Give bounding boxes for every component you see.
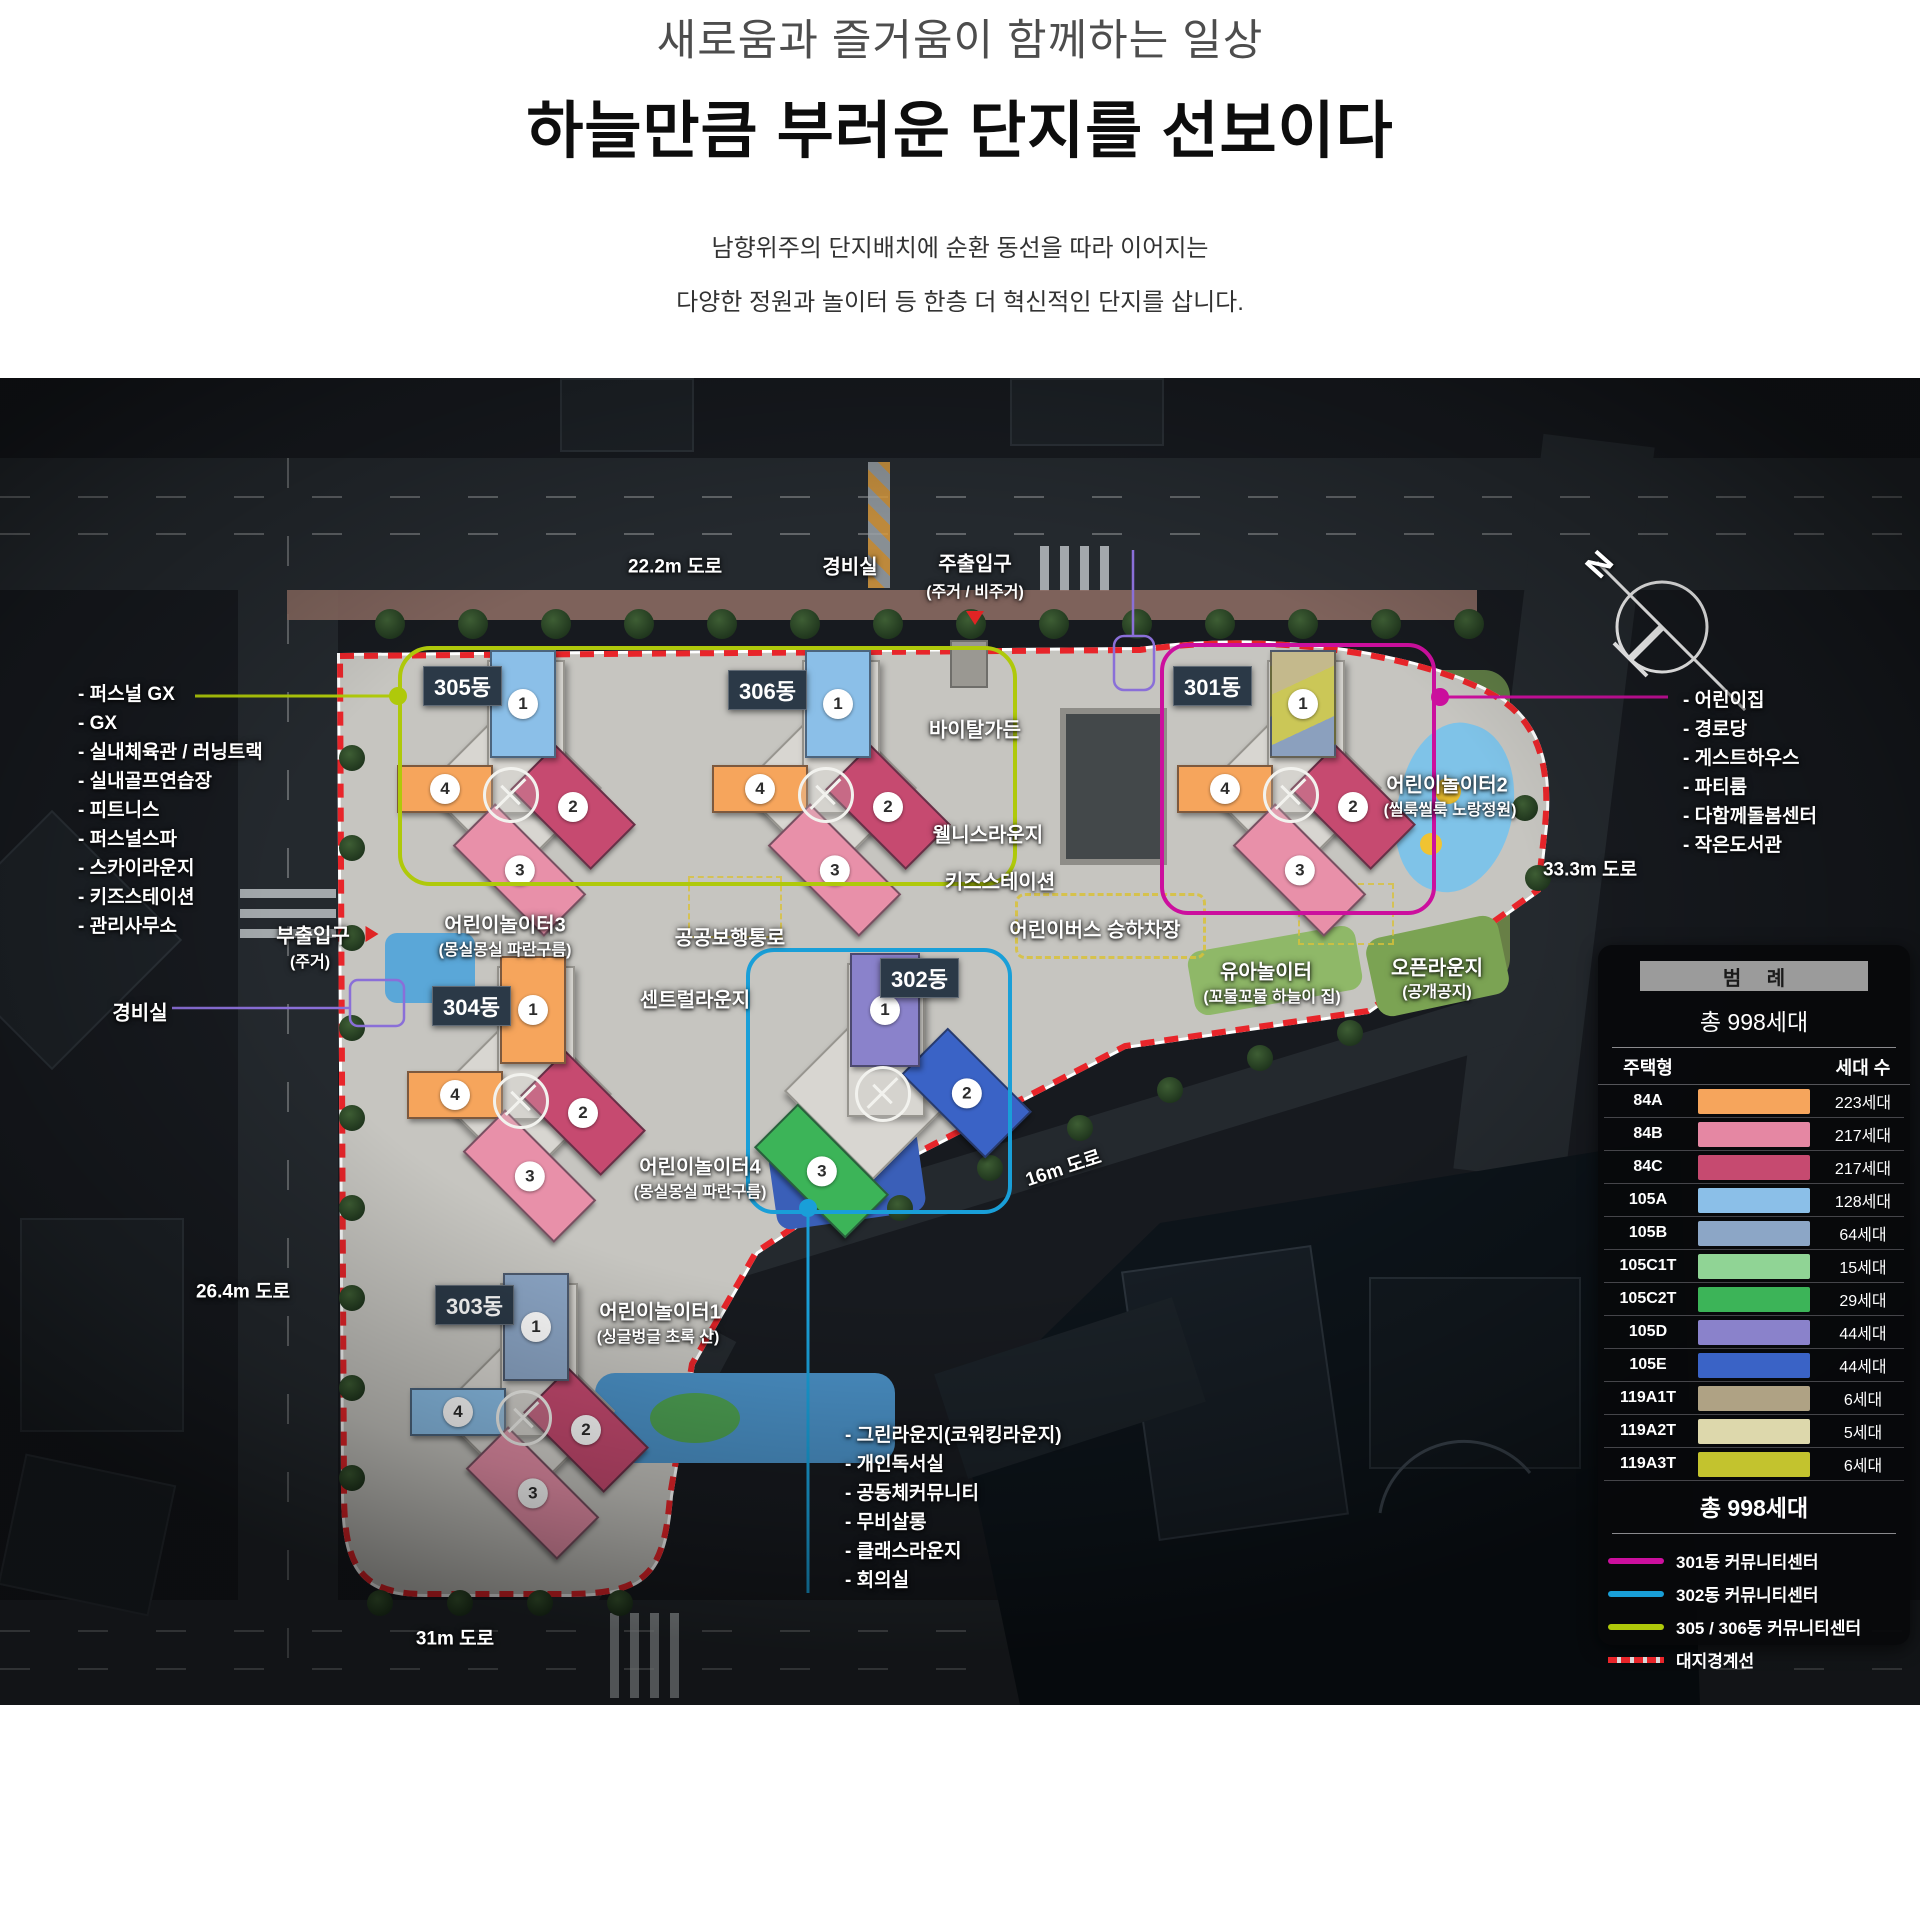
road-label-left: 26.4m 도로 (196, 1277, 290, 1304)
unit-type: 105D (1604, 1323, 1692, 1341)
unit-color-swatch (1698, 1221, 1810, 1246)
wing-number-badge: 2 (1338, 792, 1368, 822)
playground1-label: 어린이놀이터1 (599, 1296, 721, 1325)
legend-total-top: 총 998세대 (1598, 1003, 1910, 1037)
description-line-1: 남향위주의 단지배치에 순환 동선을 따라 이어지는 (0, 222, 1920, 276)
guard-post-left-label: 경비실 (112, 997, 167, 1026)
wing-number-badge: 1 (521, 1312, 551, 1342)
wing-number-badge: 2 (952, 1078, 982, 1108)
open-lounge-label: 오픈라운지 (1391, 952, 1483, 981)
legend-community-list: 301동 커뮤니티센터 302동 커뮤니티센터 305 / 306동 커뮤니티센… (1598, 1544, 1910, 1643)
central-lounge-label: 센트럴라운지 (640, 984, 750, 1013)
open-lounge-sublabel: (공개공지) (1402, 978, 1472, 1002)
legend-row: 84B 217세대 (1604, 1118, 1904, 1151)
helipad-icon (493, 1073, 549, 1129)
side-entrance-label: 부출입구 (276, 920, 350, 949)
community-label: 305 / 306동 커뮤니티센터 (1676, 1614, 1861, 1639)
legend-row: 119A1T 6세대 (1604, 1382, 1904, 1415)
building-304-wing-4: 4 (407, 1071, 503, 1119)
community-label: 302동 커뮤니티센터 (1676, 1581, 1819, 1606)
side-entrance-arrow-icon (366, 926, 379, 942)
facility-item: - 스카이라운지 (78, 854, 263, 883)
facility-item: - 퍼스널스파 (78, 825, 263, 854)
legend-divider (1612, 1047, 1896, 1048)
main-entrance-arrow-icon (966, 611, 984, 625)
facility-item: - 공동체커뮤니티 (845, 1479, 1062, 1508)
facility-item: - 무비살롱 (845, 1508, 1062, 1537)
legend-row: 105A 128세대 (1604, 1184, 1904, 1217)
facility-item: - 퍼스널 GX (78, 680, 263, 709)
legend-row: 105C1T 15세대 (1604, 1250, 1904, 1283)
community-label: 301동 커뮤니티센터 (1676, 1548, 1819, 1573)
legend-row: 84C 217세대 (1604, 1151, 1904, 1184)
left-facility-list: - 퍼스널 GX- GX- 실내체육관 / 러닝트랙- 실내골프연습장- 피트니… (78, 680, 263, 941)
helipad-icon (798, 767, 854, 823)
wing-number-badge: 1 (823, 689, 853, 719)
facility-item: - 키즈스테이션 (78, 883, 263, 912)
boundary-label: 대지경계선 (1676, 1647, 1754, 1672)
building-label-302: 302동 (880, 958, 959, 998)
public-walkway-label: 공공보행통로 (675, 922, 785, 951)
unit-type: 119A3T (1604, 1455, 1692, 1473)
legend-row: 105D 44세대 (1604, 1316, 1904, 1349)
boundary-dash-swatch (1608, 1657, 1664, 1663)
building-label-303: 303동 (435, 1285, 514, 1325)
guard-post-top-label: 경비실 (822, 551, 877, 580)
building-301-wing-1: 1 (1270, 650, 1336, 758)
wellness-lounge-label: 웰니스라운지 (933, 819, 1043, 848)
facility-item: - 피트니스 (78, 796, 263, 825)
helipad-icon (483, 767, 539, 823)
building-301-wing-4: 4 (1177, 765, 1273, 813)
unit-color-swatch (1698, 1452, 1810, 1477)
unit-count: 6세대 (1816, 1386, 1910, 1410)
wing-number-badge: 3 (807, 1156, 837, 1186)
facility-item: - 파티룸 (1683, 773, 1817, 802)
playground3-label: 어린이놀이터3 (444, 909, 566, 938)
building-label-306: 306동 (728, 670, 807, 710)
wing-number-badge: 1 (518, 995, 548, 1025)
unit-count: 223세대 (1816, 1089, 1910, 1113)
unit-color-swatch (1698, 1155, 1810, 1180)
legend-column-headers: 주택형 세대 수 (1604, 1052, 1904, 1082)
infant-play-label: 유아놀이터 (1220, 956, 1312, 985)
legend-panel: 범 례 총 998세대 주택형 세대 수 84A 223세대 84B 217세대 (1598, 945, 1910, 1645)
wing-number-badge: 4 (745, 774, 775, 804)
wing-number-badge: 3 (515, 1161, 545, 1191)
facility-item: - 개인독서실 (845, 1450, 1062, 1479)
wing-number-badge: 3 (1285, 855, 1315, 885)
building-label-301: 301동 (1173, 666, 1252, 706)
playground4-label: 어린이놀이터4 (639, 1151, 761, 1180)
facility-item: - 실내골프연습장 (78, 767, 263, 796)
legend-row: 105B 64세대 (1604, 1217, 1904, 1250)
building-305-wing-4: 4 (397, 765, 493, 813)
helipad-icon (496, 1390, 552, 1446)
unit-type: 119A2T (1604, 1422, 1692, 1440)
right-facility-list: - 어린이집- 경로당- 게스트하우스- 파티룸- 다함께돌봄센터- 작은도서관 (1683, 686, 1817, 860)
community-legend-item: 301동 커뮤니티센터 (1598, 1544, 1910, 1577)
description-line-2: 다양한 정원과 놀이터 등 한층 더 혁신적인 단지를 삽니다. (0, 276, 1920, 330)
unit-color-swatch (1698, 1188, 1810, 1213)
wing-number-badge: 4 (440, 1080, 470, 1110)
facility-item: - 그린라운지(코워킹라운지) (845, 1421, 1062, 1450)
legend-row: 105E 44세대 (1604, 1349, 1904, 1382)
legend-row: 105C2T 29세대 (1604, 1283, 1904, 1316)
bottom-facility-list: - 그린라운지(코워킹라운지)- 개인독서실- 공동체커뮤니티- 무비살롱- 클… (845, 1421, 1062, 1595)
unit-type: 105A (1604, 1191, 1692, 1209)
unit-count: 44세대 (1816, 1353, 1910, 1377)
main-entrance-label: 주출입구 (938, 548, 1012, 577)
unit-color-swatch (1698, 1386, 1810, 1411)
wing-number-badge: 4 (443, 1397, 473, 1427)
legend-row: 84A 223세대 (1604, 1085, 1904, 1118)
legend-total-bottom: 총 998세대 (1598, 1489, 1910, 1523)
boundary-legend-item: 대지경계선 (1598, 1643, 1910, 1676)
building-306: 4321306동 (710, 650, 970, 920)
facility-item: - GX (78, 709, 263, 738)
unit-count: 29세대 (1816, 1287, 1910, 1311)
wing-number-badge: 2 (558, 792, 588, 822)
wing-number-badge: 2 (568, 1098, 598, 1128)
wing-number-badge: 2 (873, 792, 903, 822)
building-305: 4321305동 (395, 650, 655, 920)
kids-station-label: 키즈스테이션 (945, 866, 1055, 895)
side-entrance-sublabel: (주거) (290, 948, 330, 972)
building-303-wing-4: 4 (410, 1388, 506, 1436)
unit-count: 6세대 (1816, 1452, 1910, 1476)
facility-item: - 작은도서관 (1683, 831, 1817, 860)
unit-color-swatch (1698, 1089, 1810, 1114)
building-304: 4321304동 (405, 956, 665, 1226)
unit-count: 128세대 (1816, 1188, 1910, 1212)
wing-number-badge: 3 (518, 1478, 548, 1508)
unit-type: 105C1T (1604, 1257, 1692, 1275)
infant-play-sublabel: (꼬물꼬물 하늘이 집) (1203, 983, 1340, 1007)
facility-item: - 클래스라운지 (845, 1537, 1062, 1566)
community-line-swatch (1608, 1558, 1664, 1564)
unit-color-swatch (1698, 1287, 1810, 1312)
playground2-label: 어린이놀이터2 (1386, 769, 1508, 798)
facility-item: - 다함께돌봄센터 (1683, 802, 1817, 831)
community-legend-item: 302동 커뮤니티센터 (1598, 1577, 1910, 1610)
unit-count: 64세대 (1816, 1221, 1910, 1245)
wing-number-badge: 1 (508, 689, 538, 719)
helipad-icon (855, 1066, 911, 1122)
building-306-wing-4: 4 (712, 765, 808, 813)
unit-color-swatch (1698, 1353, 1810, 1378)
legend-rows: 84A 223세대 84B 217세대 84C 217세대 10 (1598, 1084, 1910, 1481)
unit-type: 105E (1604, 1356, 1692, 1374)
site-plan-map: 4321305동4321306동4321301동4321304동321302동4… (0, 378, 1920, 1705)
wing-number-badge: 3 (820, 855, 850, 885)
building-label-305: 305동 (423, 666, 502, 706)
facility-item: - 어린이집 (1683, 686, 1817, 715)
unit-count: 44세대 (1816, 1320, 1910, 1344)
building-302: 321302동 (755, 953, 1015, 1223)
unit-color-swatch (1698, 1419, 1810, 1444)
facility-item: - 회의실 (845, 1566, 1062, 1595)
road-label-bottom: 31m 도로 (416, 1624, 494, 1651)
wing-number-badge: 2 (571, 1415, 601, 1445)
unit-type: 84B (1604, 1125, 1692, 1143)
playground2-sublabel: (씰룩씰룩 노랑정원) (1384, 796, 1517, 820)
unit-type: 84A (1604, 1092, 1692, 1110)
vital-garden-label: 바이탈가든 (929, 714, 1021, 743)
unit-color-swatch (1698, 1254, 1810, 1279)
page-description: 남향위주의 단지배치에 순환 동선을 따라 이어지는 다양한 정원과 놀이터 등… (0, 222, 1920, 330)
legend-row: 119A3T 6세대 (1604, 1448, 1904, 1481)
facility-item: - 경로당 (1683, 715, 1817, 744)
kids-bus-label: 어린이버스 승하차장 (1009, 914, 1180, 943)
wing-number-badge: 3 (505, 855, 535, 885)
unit-color-swatch (1698, 1122, 1810, 1147)
facility-item: - 게스트하우스 (1683, 744, 1817, 773)
legend-col-type: 주택형 (1604, 1054, 1692, 1080)
wing-number-badge: 1 (1288, 689, 1318, 719)
helipad-icon (1263, 767, 1319, 823)
building-label-304: 304동 (432, 986, 511, 1026)
unit-type: 105C2T (1604, 1290, 1692, 1308)
road-label-top: 22.2m 도로 (628, 552, 722, 579)
unit-count: 15세대 (1816, 1254, 1910, 1278)
wing-number-badge: 4 (430, 774, 460, 804)
community-legend-item: 305 / 306동 커뮤니티센터 (1598, 1610, 1910, 1643)
main-entrance-sublabel: (주거 / 비주거) (926, 578, 1024, 602)
playground3-sublabel: (몽실몽실 파란구름) (439, 936, 572, 960)
unit-type: 105B (1604, 1224, 1692, 1242)
wing-number-badge: 1 (870, 995, 900, 1025)
unit-type: 84C (1604, 1158, 1692, 1176)
legend-title: 범 례 (1640, 961, 1868, 991)
unit-type: 119A1T (1604, 1389, 1692, 1407)
page-title: 하늘만큼 부러운 단지를 선보이다 (0, 80, 1920, 170)
wing-number-badge: 4 (1210, 774, 1240, 804)
unit-count: 5세대 (1816, 1419, 1910, 1443)
unit-count: 217세대 (1816, 1155, 1910, 1179)
legend-row: 119A2T 5세대 (1604, 1415, 1904, 1448)
unit-count: 217세대 (1816, 1122, 1910, 1146)
facility-item: - 관리사무소 (78, 912, 263, 941)
playground1-sublabel: (싱글벙글 초록 산) (597, 1323, 720, 1347)
page-subtitle: 새로움과 즐거움이 함께하는 일상 (0, 6, 1920, 68)
page-header: 새로움과 즐거움이 함께하는 일상 하늘만큼 부러운 단지를 선보이다 남향위주… (0, 0, 1920, 378)
community-line-swatch (1608, 1591, 1664, 1597)
community-line-swatch (1608, 1624, 1664, 1630)
unit-color-swatch (1698, 1320, 1810, 1345)
playground4-sublabel: (몽실몽실 파란구름) (634, 1178, 767, 1202)
road-label-right: 33.3m 도로 (1543, 855, 1637, 882)
legend-col-count: 세대 수 (1816, 1054, 1910, 1080)
legend-divider (1612, 1533, 1896, 1534)
facility-item: - 실내체육관 / 러닝트랙 (78, 738, 263, 767)
building-306-wing-1: 1 (805, 650, 871, 758)
